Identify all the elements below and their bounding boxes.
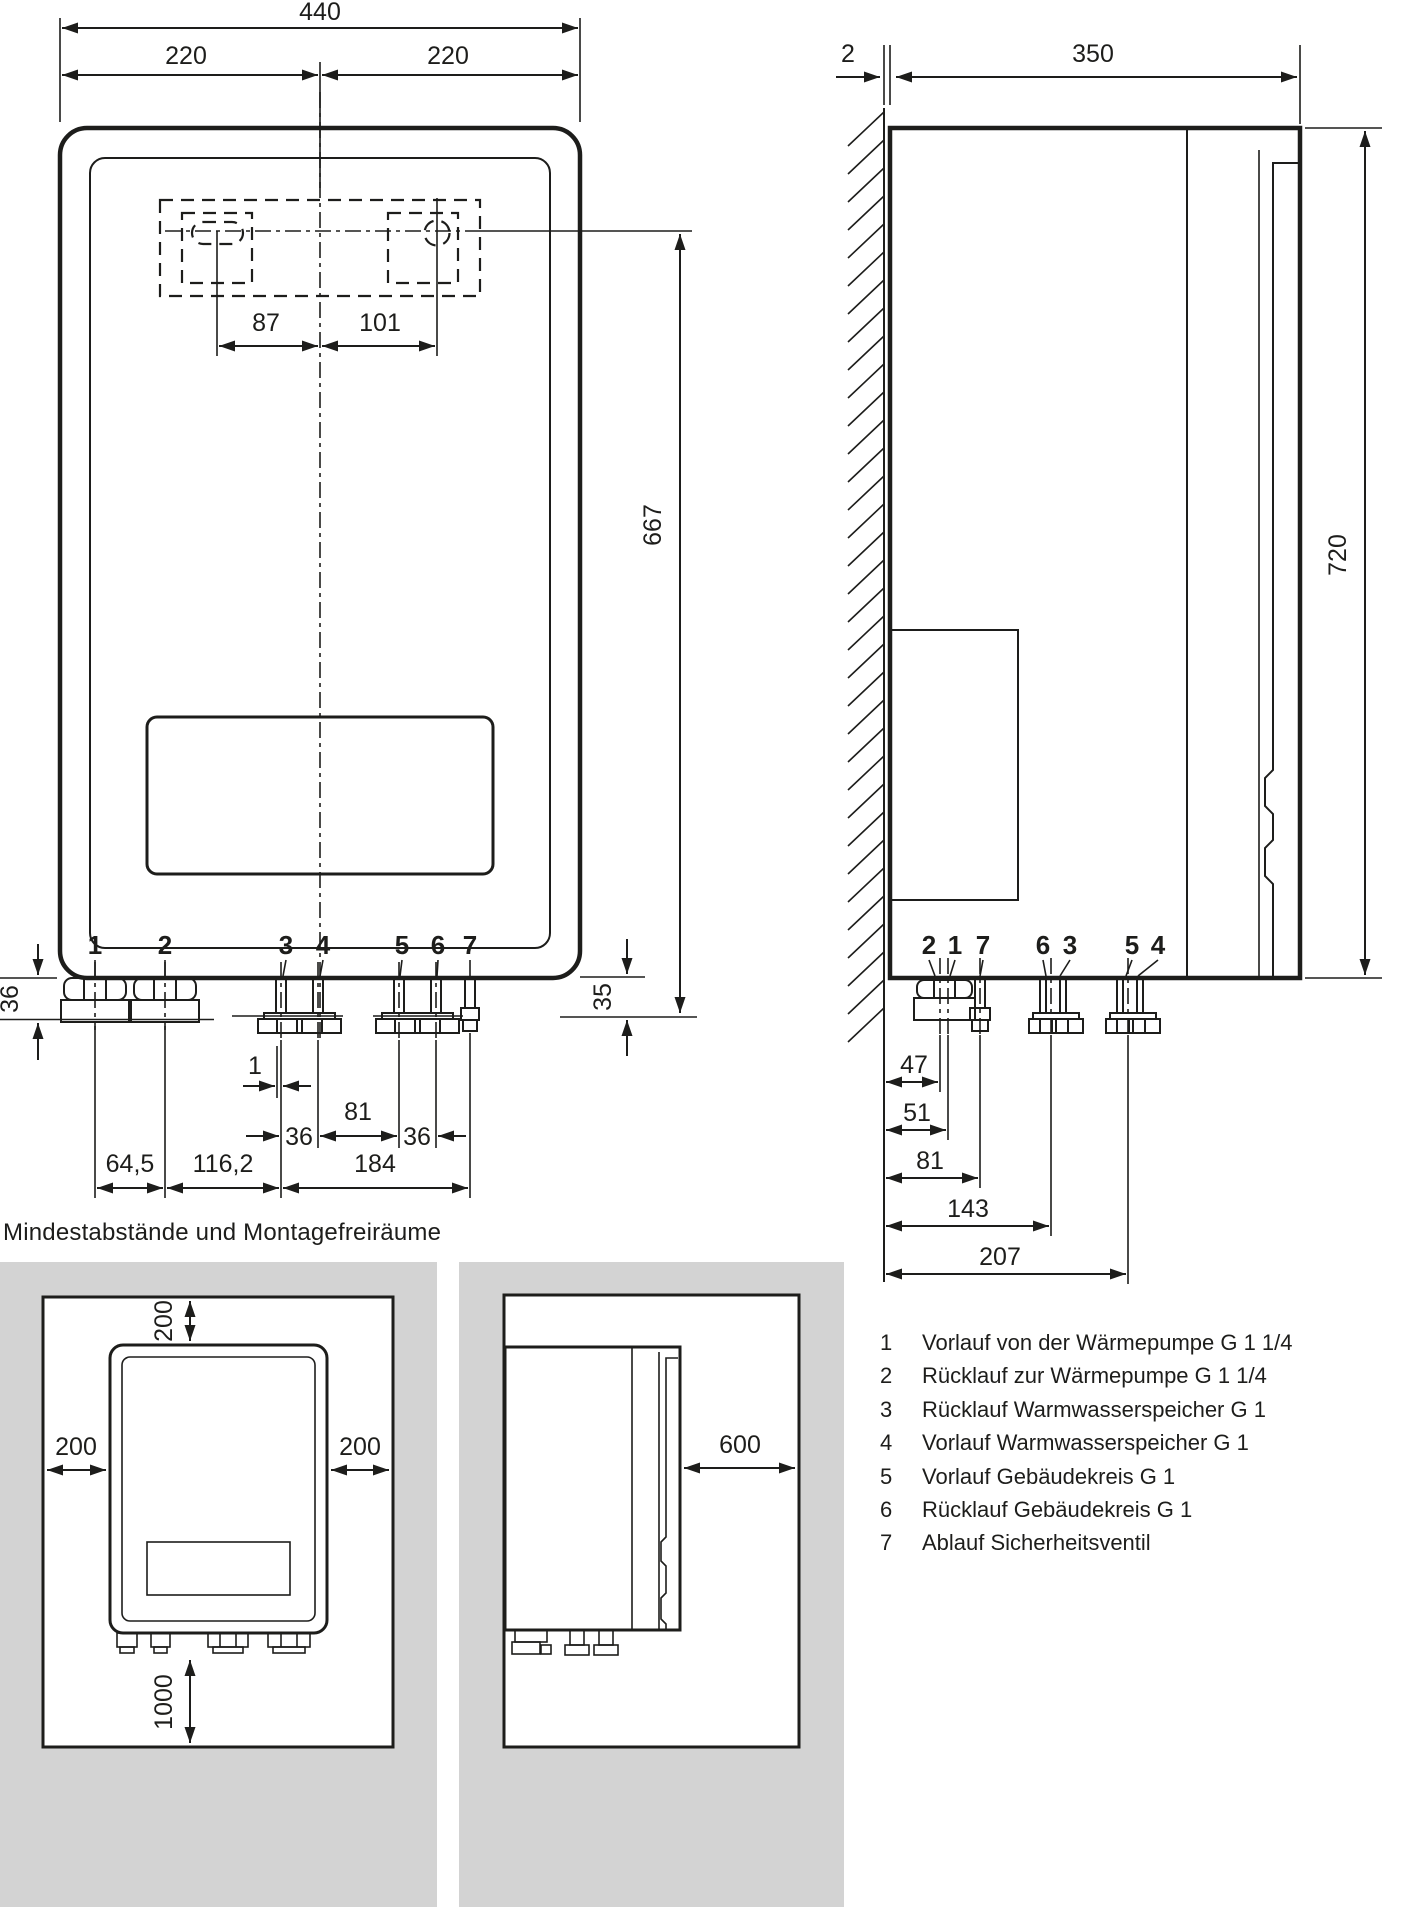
wall-hatching	[848, 112, 884, 1042]
dim-clearance-left: 200	[55, 1433, 97, 1461]
legend-item: 3 Rücklauf Warmwasserspeicher G 1	[880, 1393, 1293, 1426]
dim-clearance-right: 200	[339, 1433, 381, 1461]
dim-span-1-2: 64,5	[106, 1150, 155, 1178]
dim-height: 720	[1324, 534, 1352, 576]
front-conn-label-6: 6	[431, 930, 445, 960]
dim-span-3-7: 184	[354, 1150, 396, 1178]
section-heading: Mindestabstände und Montagefreiräume	[3, 1219, 441, 1247]
connection-legend: 1 Vorlauf von der Wärmepumpe G 1 1/4 2 R…	[880, 1326, 1293, 1560]
legend-item: 4 Vorlauf Warmwasserspeicher G 1	[880, 1426, 1293, 1459]
side-connection-labels: 2 1 7 6 3 5 4	[922, 930, 1166, 976]
legend-item-number: 7	[880, 1526, 922, 1559]
side-conn-label-3: 3	[1063, 930, 1077, 960]
dim-conn-36b: 36	[403, 1123, 431, 1151]
front-connections	[61, 962, 479, 1038]
dim-half-left: 220	[165, 42, 207, 70]
clearance-front-figure: 200 200 200 1000	[0, 1262, 437, 1907]
front-conn-label-2: 2	[158, 930, 172, 960]
dim-span-2-3: 116,2	[193, 1150, 254, 1178]
legend-item-number: 3	[880, 1393, 922, 1426]
legend-item: 6 Rücklauf Gebäudekreis G 1	[880, 1493, 1293, 1526]
clearance-side-figure: 600	[459, 1262, 844, 1907]
dim-half-right: 220	[427, 42, 469, 70]
dim-d47: 47	[900, 1051, 928, 1079]
dim-hole-left: 87	[252, 309, 280, 337]
side-conn-label-4: 4	[1151, 930, 1166, 960]
front-conn-label-4: 4	[316, 930, 331, 960]
dim-conn-36a: 36	[285, 1123, 313, 1151]
side-conn-label-5: 5	[1125, 930, 1139, 960]
side-unit-outline	[890, 128, 1300, 978]
legend-item-number: 4	[880, 1426, 922, 1459]
side-conn-label-2: 2	[922, 930, 936, 960]
dim-wall-gap: 2	[841, 40, 855, 68]
legend-item-text: Vorlauf Gebäudekreis G 1	[922, 1460, 1175, 1493]
legend-item-number: 5	[880, 1460, 922, 1493]
dim-clearance-side-front: 600	[719, 1431, 761, 1459]
clearance-side-room	[504, 1295, 799, 1747]
legend-item: 1 Vorlauf von der Wärmepumpe G 1 1/4	[880, 1326, 1293, 1359]
dim-d51: 51	[903, 1099, 931, 1127]
dim-clearance-top: 200	[150, 1300, 178, 1342]
legend-item-text: Rücklauf Gebäudekreis G 1	[922, 1493, 1192, 1526]
dim-total-width: 440	[299, 0, 341, 26]
dim-left-drop: 36	[0, 985, 24, 1013]
front-conn-label-3: 3	[279, 930, 293, 960]
dim-d207: 207	[979, 1243, 1021, 1271]
side-conn-label-6: 6	[1036, 930, 1050, 960]
front-view: 440 220 220 87 101 667 1 2 3 4 5 6 7	[0, 0, 697, 1198]
side-conn-label-1: 1	[948, 930, 962, 960]
legend-item: 2 Rücklauf zur Wärmepumpe G 1 1/4	[880, 1359, 1293, 1392]
dim-conn-offset: 1	[248, 1052, 262, 1080]
legend-item-number: 6	[880, 1493, 922, 1526]
front-connection-labels: 1 2 3 4 5 6 7	[88, 930, 477, 976]
front-conn-label-1: 1	[88, 930, 102, 960]
technical-drawing: 440 220 220 87 101 667 1 2 3 4 5 6 7	[0, 0, 1402, 1907]
side-connections	[914, 958, 1160, 1035]
legend-item: 7 Ablauf Sicherheitsventil	[880, 1526, 1293, 1559]
legend-item: 5 Vorlauf Gebäudekreis G 1	[880, 1460, 1293, 1493]
clearance-front-room	[43, 1297, 393, 1747]
dim-depth: 350	[1072, 40, 1114, 68]
side-front-panel-edge	[1265, 163, 1300, 978]
legend-item-text: Rücklauf Warmwasserspeicher G 1	[922, 1393, 1266, 1426]
dim-d81: 81	[916, 1147, 944, 1175]
legend-item-text: Rücklauf zur Wärmepumpe G 1 1/4	[922, 1359, 1267, 1392]
dimension-drawing-page: 440 220 220 87 101 667 1 2 3 4 5 6 7	[0, 0, 1402, 1907]
dim-clearance-bottom: 1000	[150, 1674, 178, 1730]
legend-item-text: Vorlauf von der Wärmepumpe G 1 1/4	[922, 1326, 1293, 1359]
front-conn-label-7: 7	[463, 930, 477, 960]
dim-right-drop: 35	[589, 983, 617, 1011]
front-conn-label-5: 5	[395, 930, 409, 960]
dim-d143: 143	[947, 1195, 989, 1223]
dim-hole-right: 101	[359, 309, 401, 337]
legend-item-number: 2	[880, 1359, 922, 1392]
dim-conn-81: 81	[344, 1098, 372, 1126]
side-inner-component	[890, 630, 1018, 900]
side-conn-label-7: 7	[976, 930, 990, 960]
legend-item-text: Vorlauf Warmwasserspeicher G 1	[922, 1426, 1249, 1459]
dim-height-holes: 667	[639, 504, 667, 546]
legend-item-text: Ablauf Sicherheitsventil	[922, 1526, 1151, 1559]
legend-item-number: 1	[880, 1326, 922, 1359]
side-view: 2 350 720 2 1 7 6 3 5 4	[836, 40, 1382, 1284]
